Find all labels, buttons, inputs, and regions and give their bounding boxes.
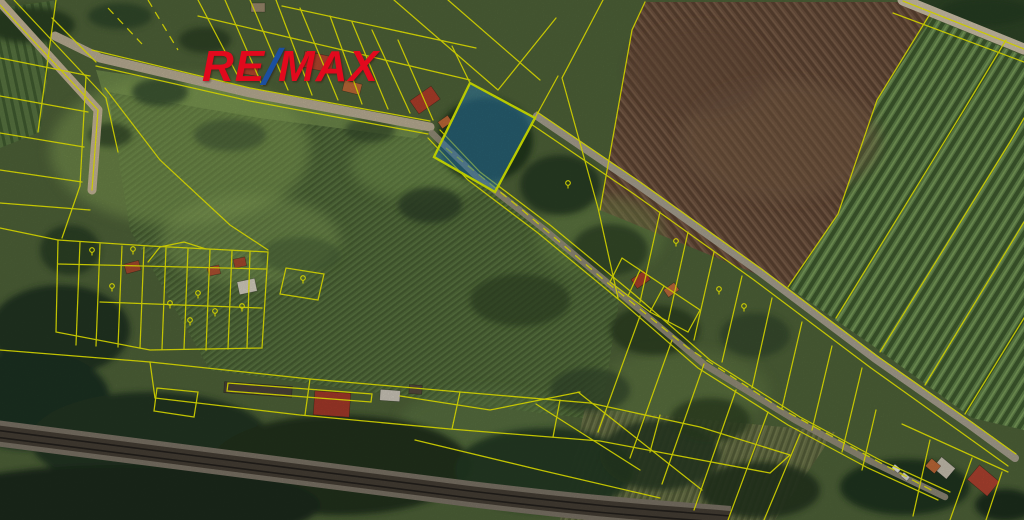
map-root[interactable]: RE/MAX — [0, 0, 1024, 520]
aerial-noise-overlay — [0, 0, 1024, 520]
remax-logo-re: RE — [202, 42, 265, 91]
remax-logo: RE/MAX — [202, 42, 379, 92]
remax-logo-max: MAX — [278, 42, 379, 91]
cadastral-map[interactable] — [0, 0, 1024, 520]
